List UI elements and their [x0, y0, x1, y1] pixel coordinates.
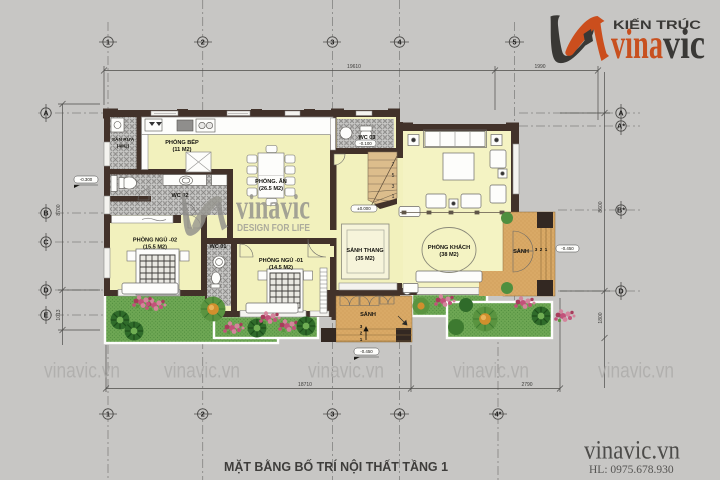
svg-text:SẢNH THANG: SẢNH THANG	[346, 247, 383, 254]
svg-text:5: 5	[392, 173, 395, 179]
svg-text:C: C	[43, 238, 48, 247]
svg-text:3: 3	[330, 410, 334, 419]
svg-text:2: 2	[540, 247, 543, 252]
svg-text:1800: 1800	[598, 312, 604, 323]
svg-text:2: 2	[201, 410, 205, 419]
svg-text:±0.000: ±0.000	[357, 206, 371, 211]
svg-text:2790: 2790	[521, 382, 532, 388]
svg-text:vinavic.vn: vinavic.vn	[44, 360, 120, 383]
svg-text:vinavic.vn: vinavic.vn	[164, 360, 240, 383]
svg-text:1: 1	[106, 38, 110, 47]
svg-text:vic: vic	[663, 22, 705, 68]
svg-text:(35 M2): (35 M2)	[355, 256, 374, 262]
svg-text:vinavic.vn: vinavic.vn	[308, 360, 384, 383]
svg-text:1: 1	[106, 410, 110, 419]
svg-text:A: A	[43, 109, 48, 118]
svg-text:vinavic.vn: vinavic.vn	[598, 360, 674, 383]
svg-text:3: 3	[535, 247, 538, 252]
svg-text:D: D	[618, 287, 623, 296]
svg-text:7: 7	[392, 162, 395, 168]
svg-text:4*: 4*	[495, 410, 502, 419]
svg-text:(11 M2): (11 M2)	[173, 147, 192, 153]
svg-text:-0.450: -0.450	[360, 349, 373, 354]
svg-text:-0.300: -0.300	[80, 177, 93, 182]
svg-text:vina: vina	[611, 22, 663, 68]
svg-text:1: 1	[545, 247, 548, 252]
svg-text:WC 01: WC 01	[209, 244, 226, 250]
svg-text:-0.450: -0.450	[561, 246, 574, 251]
svg-text:PHÒNG KHÁCH: PHÒNG KHÁCH	[428, 243, 470, 251]
svg-text:vinavic.vn: vinavic.vn	[584, 436, 680, 465]
svg-text:18710: 18710	[298, 382, 312, 388]
svg-text:(4M2): (4M2)	[117, 144, 130, 150]
svg-text:vinavic: vinavic	[236, 188, 310, 227]
svg-text:B: B	[43, 209, 48, 218]
svg-text:PHÒNG BẾP: PHÒNG BẾP	[165, 138, 199, 146]
svg-text:2: 2	[201, 38, 205, 47]
svg-text:SÂN RỬA: SÂN RỬA	[112, 136, 135, 143]
svg-text:1: 1	[392, 194, 395, 200]
svg-text:1013: 1013	[56, 309, 62, 320]
svg-text:PHÒNG. ĂN: PHÒNG. ĂN	[255, 177, 287, 185]
svg-text:4: 4	[398, 410, 402, 419]
svg-text:WC 02: WC 02	[171, 193, 188, 199]
svg-text:1990: 1990	[534, 64, 545, 70]
svg-text:SẢNH: SẢNH	[360, 311, 376, 318]
svg-text:E: E	[44, 311, 49, 320]
svg-text:3: 3	[330, 38, 334, 47]
svg-text:vinavic.vn: vinavic.vn	[453, 360, 529, 383]
svg-text:D: D	[43, 286, 48, 295]
svg-text:(15.5 M2): (15.5 M2)	[143, 245, 167, 251]
svg-text:1: 1	[360, 337, 363, 342]
svg-text:MẶT BẰNG BỐ TRÍ NỘI THẤT TẦNG: MẶT BẰNG BỐ TRÍ NỘI THẤT TẦNG 1	[224, 459, 448, 474]
svg-text:3: 3	[360, 324, 363, 329]
svg-text:5: 5	[513, 38, 517, 47]
svg-text:19610: 19610	[347, 64, 361, 70]
svg-text:PHÒNG NGỦ -02: PHÒNG NGỦ -02	[133, 236, 177, 244]
svg-text:A: A	[618, 109, 623, 118]
svg-text:B*: B*	[617, 206, 625, 215]
svg-text:(38 M2): (38 M2)	[439, 252, 458, 258]
svg-text:8700: 8700	[56, 204, 62, 215]
svg-text:PHÒNG NGỦ -01: PHÒNG NGỦ -01	[259, 256, 303, 264]
svg-text:DESIGN FOR LIFE: DESIGN FOR LIFE	[237, 222, 310, 234]
svg-text:(14.5 M2): (14.5 M2)	[269, 265, 293, 271]
svg-text:8600: 8600	[598, 201, 604, 212]
svg-text:HL: 0975.678.930: HL: 0975.678.930	[589, 464, 674, 476]
svg-text:2: 2	[360, 331, 363, 336]
svg-text:-0.100: -0.100	[359, 141, 372, 146]
svg-text:3: 3	[392, 184, 395, 190]
svg-text:4: 4	[398, 38, 402, 47]
svg-text:SẢNH: SẢNH	[513, 248, 529, 255]
svg-text:A*: A*	[617, 122, 625, 131]
